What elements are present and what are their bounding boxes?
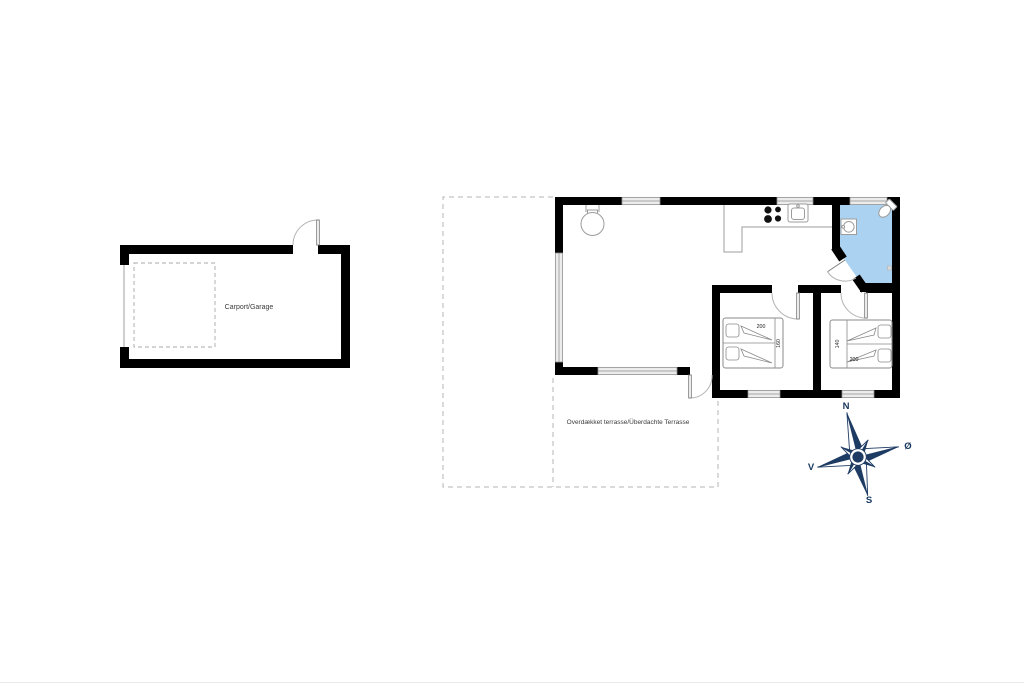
window [622,198,660,205]
terrace: Overdækket terrasse/Überdachte Terrasse [443,197,718,487]
terrace-door [689,375,712,398]
pillow [878,325,891,338]
bed-length-label: 200 [850,357,859,363]
floorplan-canvas: Carport/Garage Overdækket terrasse/Überd… [0,0,1024,682]
carport-building: Carport/Garage [120,220,350,368]
floor-plan: Carport/Garage Overdækket terrasse/Überd… [0,0,1024,682]
carport-parking-outline [134,263,215,347]
washbasin-icon [841,219,857,235]
wall-segment [813,197,850,205]
compass-rose-icon: N Ø S V [806,401,912,506]
compass-west-label: V [808,462,815,473]
shower-drain-icon [888,266,892,270]
wood-stove-icon [581,205,604,236]
wall-segment [712,390,748,398]
bedroom-west-wall [712,285,720,398]
wall-segment [892,197,900,397]
carport-door-arc [293,220,318,245]
wall-segment [720,285,772,293]
wall-segment [120,347,129,368]
wall-segment [874,390,900,398]
compass-north-label: N [843,401,850,412]
wall-segment [555,197,622,205]
bathroom-west-wall [832,197,840,250]
bed-length-label: 200 [757,324,766,330]
terrace-outline [443,197,718,487]
wall-segment [120,245,293,254]
wall-segment [120,245,129,265]
window [842,391,874,398]
kitchen [724,204,832,252]
pillow [726,347,739,360]
window [748,391,780,398]
wall-segment [780,390,842,398]
bed-right: 140 200 [830,320,892,368]
bedroom-right-door [841,293,867,318]
window [556,253,563,362]
compass-east-label: Ø [904,441,911,452]
compass-south-label: S [866,495,872,506]
bed-width-label: 160 [776,339,782,348]
wall-segment [120,359,350,368]
wall-segment [555,367,598,375]
bedroom-left-door [772,293,799,319]
house: 200 160 140 200 [555,197,900,398]
kitchen-sink-icon [788,204,808,222]
bed-left: 200 160 [723,318,783,368]
window [777,198,813,205]
pillow [726,324,739,337]
wall-segment [798,285,841,293]
wall-segment [555,197,563,253]
window [850,198,887,205]
carport-door-leaf [317,220,320,245]
wall-segment [677,367,690,375]
pillow [878,349,891,362]
hob-icon [764,206,781,223]
terrace-label: Overdækket terrasse/Überdachte Terrasse [567,418,690,426]
wall-segment [660,197,777,205]
window [598,368,677,375]
bedroom-divider-wall [813,293,821,390]
carport-label: Carport/Garage [225,304,274,311]
bed-width-label: 140 [835,340,841,349]
wall-segment [341,245,350,368]
